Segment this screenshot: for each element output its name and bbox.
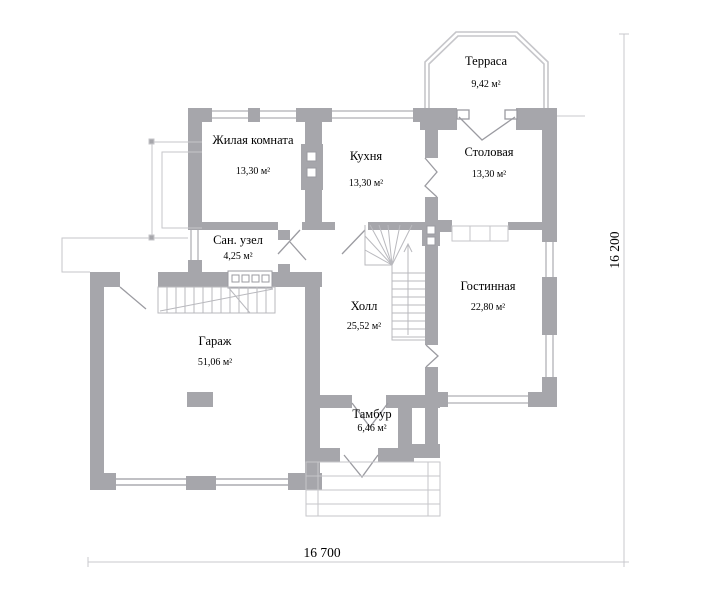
room-area: 9,42 м² xyxy=(465,80,507,90)
room-label-bathroom: Сан. узел 4,25 м² xyxy=(213,234,263,262)
room-label-terrace: Терраса 9,42 м² xyxy=(465,55,507,90)
room-name: Терраса xyxy=(465,55,507,68)
counter xyxy=(452,226,508,241)
room-area: 22,80 м² xyxy=(460,303,515,313)
room-name: Кухня xyxy=(349,150,383,163)
garage-staircase xyxy=(158,287,275,313)
room-label-dining-room: Столовая 13,30 м² xyxy=(464,146,513,180)
room-area: 13,30 м² xyxy=(349,179,383,189)
room-name: Жилая комната xyxy=(213,134,294,147)
room-area: 25,52 м² xyxy=(347,322,381,332)
room-area: 6,46 м² xyxy=(352,424,391,434)
room-name: Холл xyxy=(347,300,381,313)
room-label-lounge: Гостинная 22,80 м² xyxy=(460,280,515,313)
room-name: Гараж xyxy=(198,335,232,348)
radiator xyxy=(228,271,272,288)
room-label-vestibule: Тамбур 6,46 м² xyxy=(352,408,391,434)
floor-plan: Терраса 9,42 м² Жилая комната 13,30 м² К… xyxy=(0,0,714,600)
room-label-kitchen: Кухня 13,30 м² xyxy=(349,150,383,189)
room-label-garage: Гараж 51,06 м² xyxy=(198,335,232,368)
room-name: Тамбур xyxy=(352,408,391,421)
room-label-hall: Холл 25,52 м² xyxy=(347,300,381,332)
room-name: Сан. узел xyxy=(213,234,263,247)
room-area: 13,30 м² xyxy=(464,170,513,180)
room-name: Гостинная xyxy=(460,280,515,293)
entrance-steps xyxy=(306,462,440,516)
room-area: 4,25 м² xyxy=(213,252,263,262)
room-area: 51,06 м² xyxy=(198,358,232,368)
canopy-outline xyxy=(62,139,202,272)
dimension-height-label: 16 200 xyxy=(607,231,623,268)
room-label-living-room: Жилая комната 13,30 м² xyxy=(213,134,294,177)
room-area: 13,30 м² xyxy=(213,167,294,177)
dimension-width-label: 16 700 xyxy=(303,545,340,561)
room-name: Столовая xyxy=(464,146,513,159)
